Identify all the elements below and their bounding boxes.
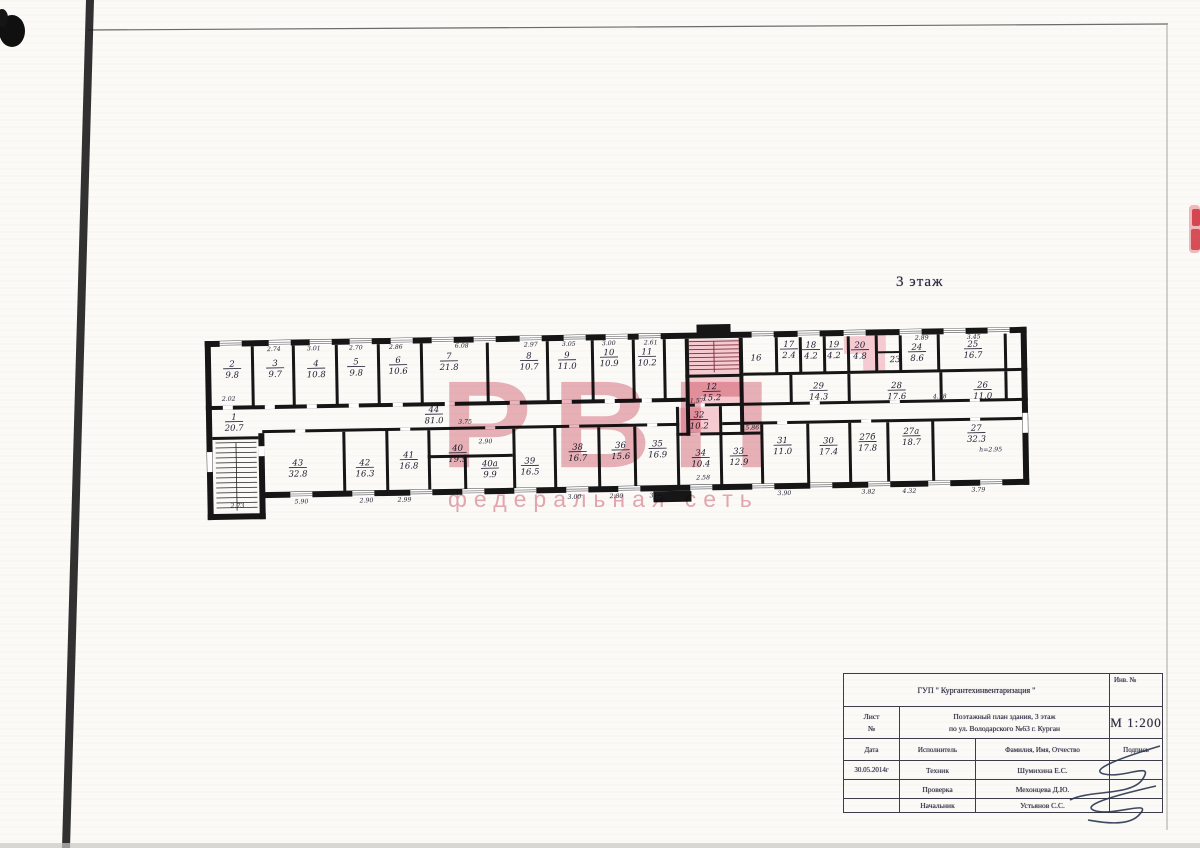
room-area: 14.3 [809,392,828,402]
document-title-line2: по ул. Володарского №63 г. Курган [949,723,1060,734]
dim-label: 3.79 [971,487,985,494]
window [207,452,213,472]
window [474,336,496,342]
window [980,480,1002,486]
room-area: 32.8 [288,469,308,479]
wall-segment [823,336,827,373]
room-area: 9.8 [349,368,363,378]
wall-segment [208,513,266,520]
door-opening [861,420,871,423]
dim-label: 2.73 [230,502,245,509]
room-area: 32.3 [967,435,986,445]
wall-segment [377,344,381,405]
room-number: 4 [312,359,319,369]
sheet-number-label: № [868,723,875,734]
empty-date-cell-2 [843,798,899,813]
title-block-document-title: Поэтажный план здания, 3 этаж по ул. Вол… [899,706,1109,738]
wall-segment [292,346,296,407]
window [752,332,774,338]
window [810,483,832,489]
door-opening [393,403,403,407]
room-area: 4.2 [826,351,841,361]
window [1022,413,1028,433]
wall-segment [848,423,852,484]
title-block-sheet-cell: Лист № [843,706,899,738]
dim-label: 4.18 [932,393,947,400]
scanned-document-page: 2.743.012.702.866.082.973.053.002.612.89… [0,0,1200,848]
signature-cell-3 [1109,798,1163,813]
dim-label: 2.89 [914,335,929,342]
dim-label: 4.32 [901,488,916,495]
wall-segment [258,433,266,519]
watermark-subtitle-text: федеральная сеть [448,486,759,513]
room-number: 6 [395,356,401,366]
room-area: 16.3 [355,469,374,479]
dim-label: 2.61 [643,339,658,346]
dim-label: 3.82 [861,488,875,495]
room-area: 17.4 [819,447,838,457]
wall-segment [1004,371,1008,400]
dim-label: 2.90 [359,497,374,504]
room-number: 1 [231,413,237,423]
sheet-label: Лист [864,711,880,722]
door-opening [259,446,265,456]
dim-label: 3.01 [307,345,321,352]
dim-label: 2.99 [397,497,412,504]
name-checker: Мехонцева Д.Ю. [975,779,1109,798]
wall-segment [427,430,431,491]
window [432,337,454,343]
door-opening [307,404,317,408]
wall-segment [877,351,899,353]
room-area: 16.8 [399,461,419,471]
room-number: 27б [858,431,876,442]
door-opening [400,428,410,431]
floor-title: 3 этаж [896,274,943,291]
window [988,328,1010,334]
window [290,492,312,498]
document-date: 30.05.2014г [843,760,899,779]
window [798,331,820,337]
room-number: 5 [353,357,359,367]
room-area: 17.8 [858,443,878,453]
room-area: 20.7 [224,423,245,433]
role-chief: Начальник [899,798,975,813]
wall-segment [205,341,214,520]
dim-label: h=2.95 [979,446,1002,453]
window [410,490,432,496]
wall-segment [1021,327,1030,485]
room-area: 8.6 [910,354,924,364]
empty-date-cell-1 [843,779,899,798]
dim-label: 2.86 [388,344,403,351]
wall-segment [1004,333,1008,370]
wall-segment [696,324,730,334]
dim-label: 2.02 [221,396,236,403]
door-opening [295,429,305,432]
name-chief: Устьянов С.С. [975,798,1109,813]
room-area: 9.8 [225,371,239,381]
role-technician: Техник [899,760,975,779]
document-title-line1: Поэтажный план здания, 3 этаж [953,711,1055,722]
dim-label: 5.90 [295,498,309,505]
room-area: 4.2 [803,351,818,361]
door-opening [349,403,359,407]
wall-segment [251,346,255,407]
column-header-date: Дата [843,738,899,760]
wall-segment [886,422,890,483]
window [844,330,866,336]
room-area: 16.7 [963,351,983,361]
window [352,491,374,497]
scan-bottom-edge [0,843,1200,848]
wall-segment [937,334,941,371]
room-number: 3 [272,359,278,369]
wall-segment [931,421,935,482]
scan-edge-band [62,0,94,848]
door-opening [223,406,233,410]
room-area: 18.7 [902,438,922,448]
name-technician: Шумихина Е.С. [975,760,1109,779]
dim-label: 2.70 [348,344,363,351]
window [220,341,242,347]
red-edge-smudge-2 [1191,229,1200,250]
room-number: 2 [228,360,235,370]
title-block-organization: ГУП " Кургантехинвентаризация " [843,673,1109,706]
wall-segment [212,436,258,440]
window [928,481,950,487]
wall-segment [385,431,389,492]
window [868,482,890,488]
dim-label: 2.97 [523,341,538,348]
dim-label: 6.08 [455,343,469,350]
door-opening [265,405,275,409]
door-opening [970,418,980,421]
wall-segment [342,432,346,493]
wall-segment [806,424,810,485]
title-block-inventory-number: Инв. № [1109,673,1163,706]
wall-segment [847,374,851,403]
wall-segment [799,337,803,374]
room-area: 17.6 [887,392,907,402]
frame-top-line [88,24,1168,30]
dim-label: 2.74 [266,346,281,353]
room-number: 23 [889,355,901,365]
red-edge-smudge-1 [1192,209,1200,226]
signature-cell-1 [1109,760,1163,779]
signature-cell-2 [1109,779,1163,798]
wall-segment [335,345,339,406]
window [944,328,966,334]
column-header-full-name: Фамилия, Имя, Отчество [975,738,1109,760]
title-block-scale: М 1:200 [1109,706,1163,738]
column-header-signature: Подпись [1109,738,1163,760]
room-area: 10.8 [307,370,327,380]
watermark-logo-text: РВП [440,363,791,487]
room-area: 10.6 [389,367,409,377]
title-block: ГУП " Кургантехинвентаризация " Инв. № Л… [843,673,1163,814]
wall-segment [420,343,424,404]
column-header-executor: Исполнитель [899,738,975,760]
role-checker: Проверка [899,779,975,798]
room-area: 11.0 [973,391,993,401]
room-area: 9.7 [268,370,282,380]
room-area: 4.8 [852,352,867,362]
wall-segment [899,335,903,372]
dim-label: 3.05 [562,341,576,348]
dim-label: 3.00 [602,340,616,347]
